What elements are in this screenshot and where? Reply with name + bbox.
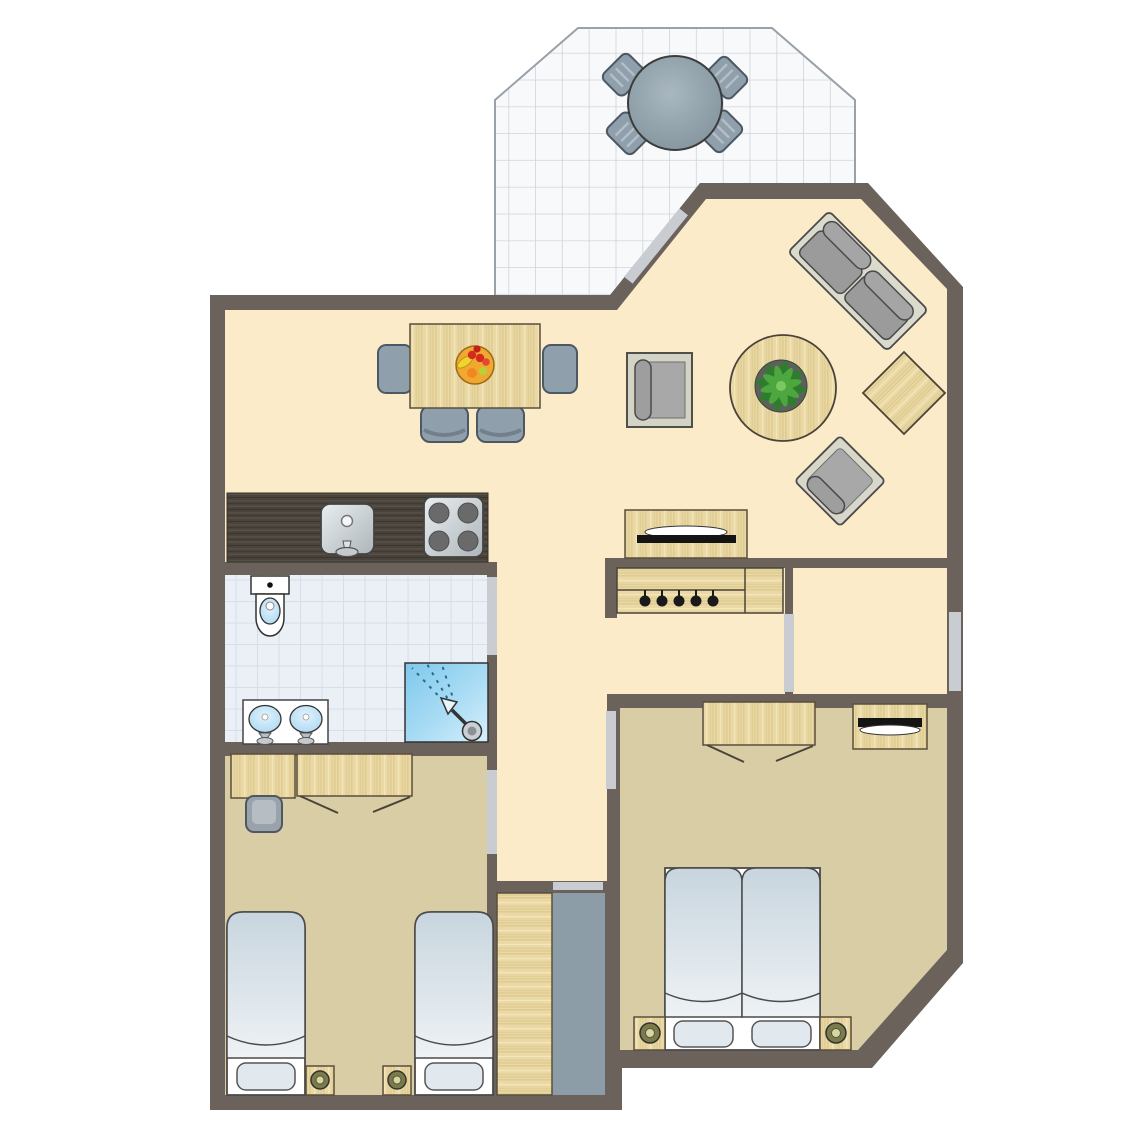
tv-dresser [853,704,927,749]
stove [424,497,483,557]
pillow [674,1021,733,1047]
kitchen-sink [321,504,374,557]
floor-plan-page [0,0,1145,1145]
dining-chair-left [378,345,412,393]
reading-armchair [627,353,692,427]
nightstand-lamp-3 [634,1017,665,1050]
nightstand-lamp-1 [306,1066,334,1095]
floor-plan-canvas [0,0,1145,1145]
pillow [425,1063,483,1090]
double-vanity [243,700,328,745]
nightstand-lamp-2 [383,1066,411,1095]
nightstand-lamp-4 [820,1017,851,1050]
wardrobe-right-bedroom [703,702,815,745]
entry-room-door [784,614,794,692]
entry-door [949,612,961,691]
coat-rack [617,568,783,613]
terrace-round-table [628,56,722,150]
single-bed-1 [227,912,305,1095]
dining-chair-right [543,345,577,393]
wall-stub-coatrack [605,558,617,618]
single-bed-2 [415,912,493,1095]
pillow [752,1021,811,1047]
coffee-table-group [730,335,836,441]
potted-plant [755,360,807,412]
double-bed [665,868,820,1050]
closet-opening [553,882,603,890]
tv-flatscreen [637,535,736,543]
closet-wardrobe [497,893,552,1095]
wardrobe-left-bedroom [297,754,412,796]
tv-sideboard [625,510,747,558]
entry-room-floor [793,568,947,694]
closet-floor [552,893,605,1095]
kitchen [227,493,488,562]
pillow [237,1063,295,1090]
desk [231,754,295,798]
bathroom-door [487,577,497,655]
hallway-floor [497,558,607,881]
shower [405,662,488,742]
bedroom-left-door [487,770,497,854]
fruit-bowl [455,345,494,384]
bedroom-right-door [606,711,616,789]
tv-screen-glare [860,725,920,735]
